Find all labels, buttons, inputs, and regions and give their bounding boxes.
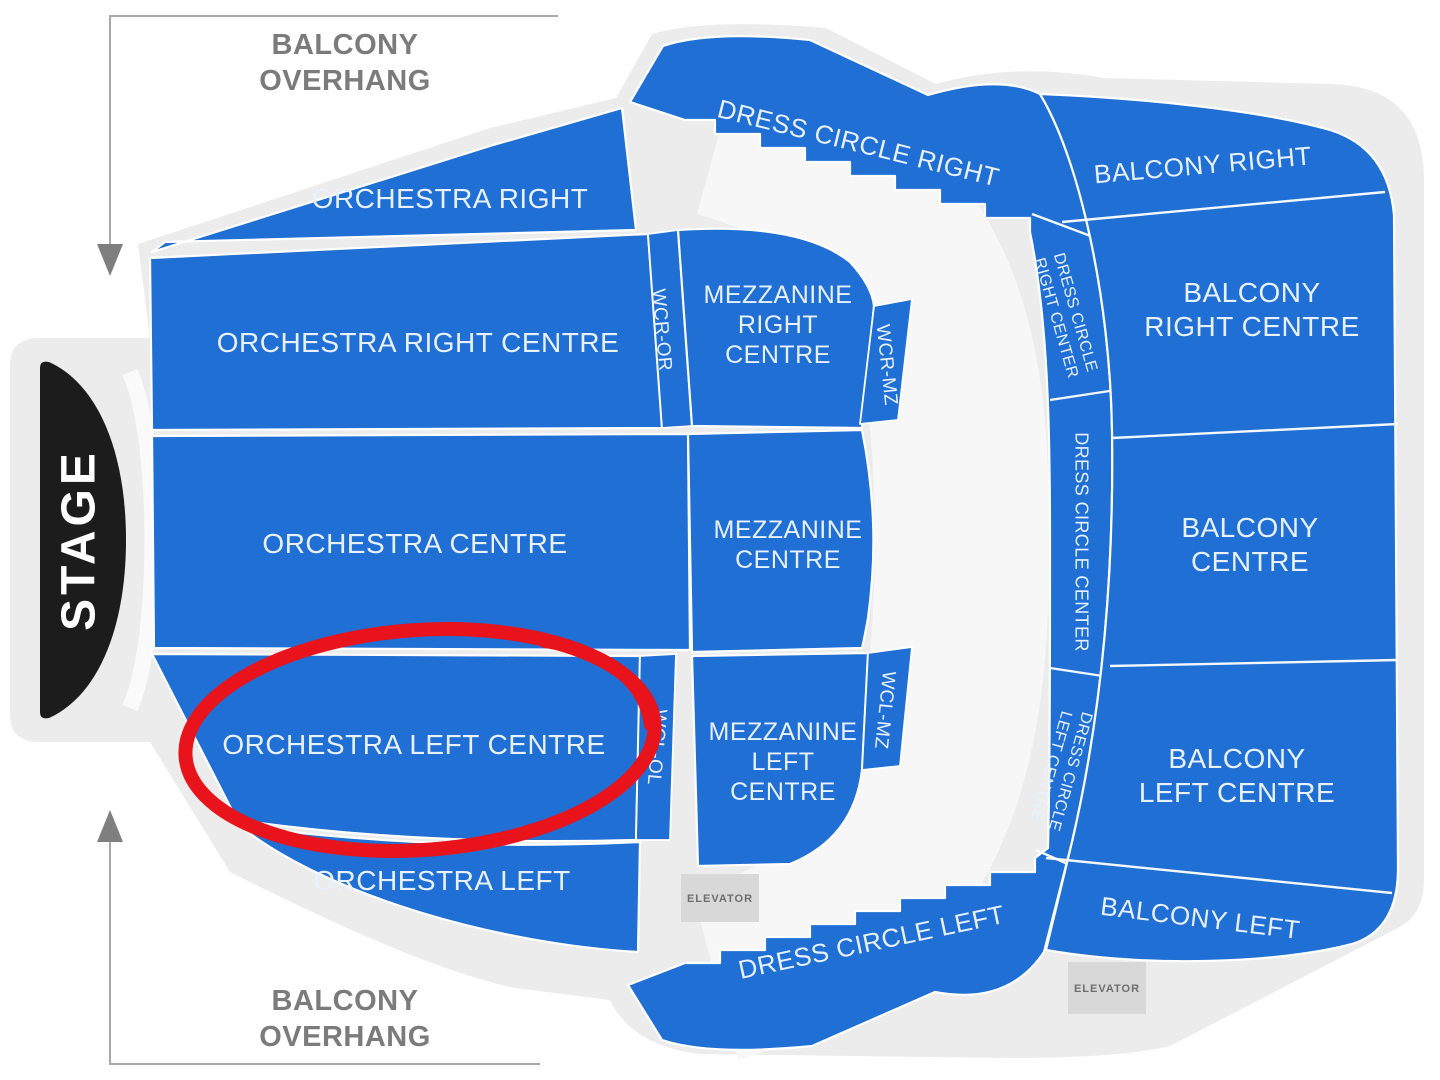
seating-map: STAGE ELEVATOR ELEVATOR ORCHESTRA RIGHT … <box>0 0 1440 1080</box>
label-mezzanine-left-centre-2: LEFT <box>751 748 814 776</box>
balcony-overhang-top-line2: OVERHANG <box>259 65 431 97</box>
label-orchestra-left: ORCHESTRA LEFT <box>313 865 570 896</box>
label-balcony-centre-1: BALCONY <box>1181 512 1318 543</box>
label-balcony-left-centre-1: BALCONY <box>1168 743 1305 774</box>
balcony-overhang-bottom-line1: BALCONY <box>272 985 419 1017</box>
label-dress-circle-center: DRESS CIRCLE CENTER <box>1071 432 1091 652</box>
balcony-overhang-bottom-line2: OVERHANG <box>259 1021 431 1053</box>
overhang-arrow-up-icon <box>97 810 123 842</box>
label-balcony-right-centre-1: BALCONY <box>1183 277 1320 308</box>
stage-label: STAGE <box>53 449 106 631</box>
label-orchestra-left-centre: ORCHESTRA LEFT CENTRE <box>222 729 605 760</box>
seating-map-canvas: STAGE ELEVATOR ELEVATOR ORCHESTRA RIGHT … <box>0 0 1440 1080</box>
elevator-label-right: ELEVATOR <box>1074 983 1140 995</box>
label-orchestra-centre: ORCHESTRA CENTRE <box>262 528 567 559</box>
overhang-arrow-down-icon <box>97 244 123 276</box>
label-balcony-centre-2: CENTRE <box>1191 546 1309 577</box>
label-balcony-right-centre-2: RIGHT CENTRE <box>1144 311 1360 342</box>
label-balcony-left-centre-2: LEFT CENTRE <box>1139 777 1335 808</box>
label-mezzanine-right-centre-3: CENTRE <box>725 341 831 369</box>
balcony-overhang-top-line1: BALCONY <box>272 29 419 61</box>
label-mezzanine-left-centre-1: MEZZANINE <box>709 718 858 746</box>
label-orchestra-right: ORCHESTRA RIGHT <box>312 183 589 214</box>
label-mezzanine-left-centre-3: CENTRE <box>730 778 836 806</box>
label-mezzanine-right-centre-2: RIGHT <box>738 311 818 339</box>
section-orchestra-right[interactable] <box>152 108 636 252</box>
elevator-label-left: ELEVATOR <box>687 893 753 905</box>
label-orchestra-right-centre: ORCHESTRA RIGHT CENTRE <box>217 327 620 358</box>
label-mezzanine-right-centre-1: MEZZANINE <box>704 281 853 309</box>
label-mezzanine-centre-1: MEZZANINE <box>714 516 863 544</box>
label-mezzanine-centre-2: CENTRE <box>735 546 841 574</box>
